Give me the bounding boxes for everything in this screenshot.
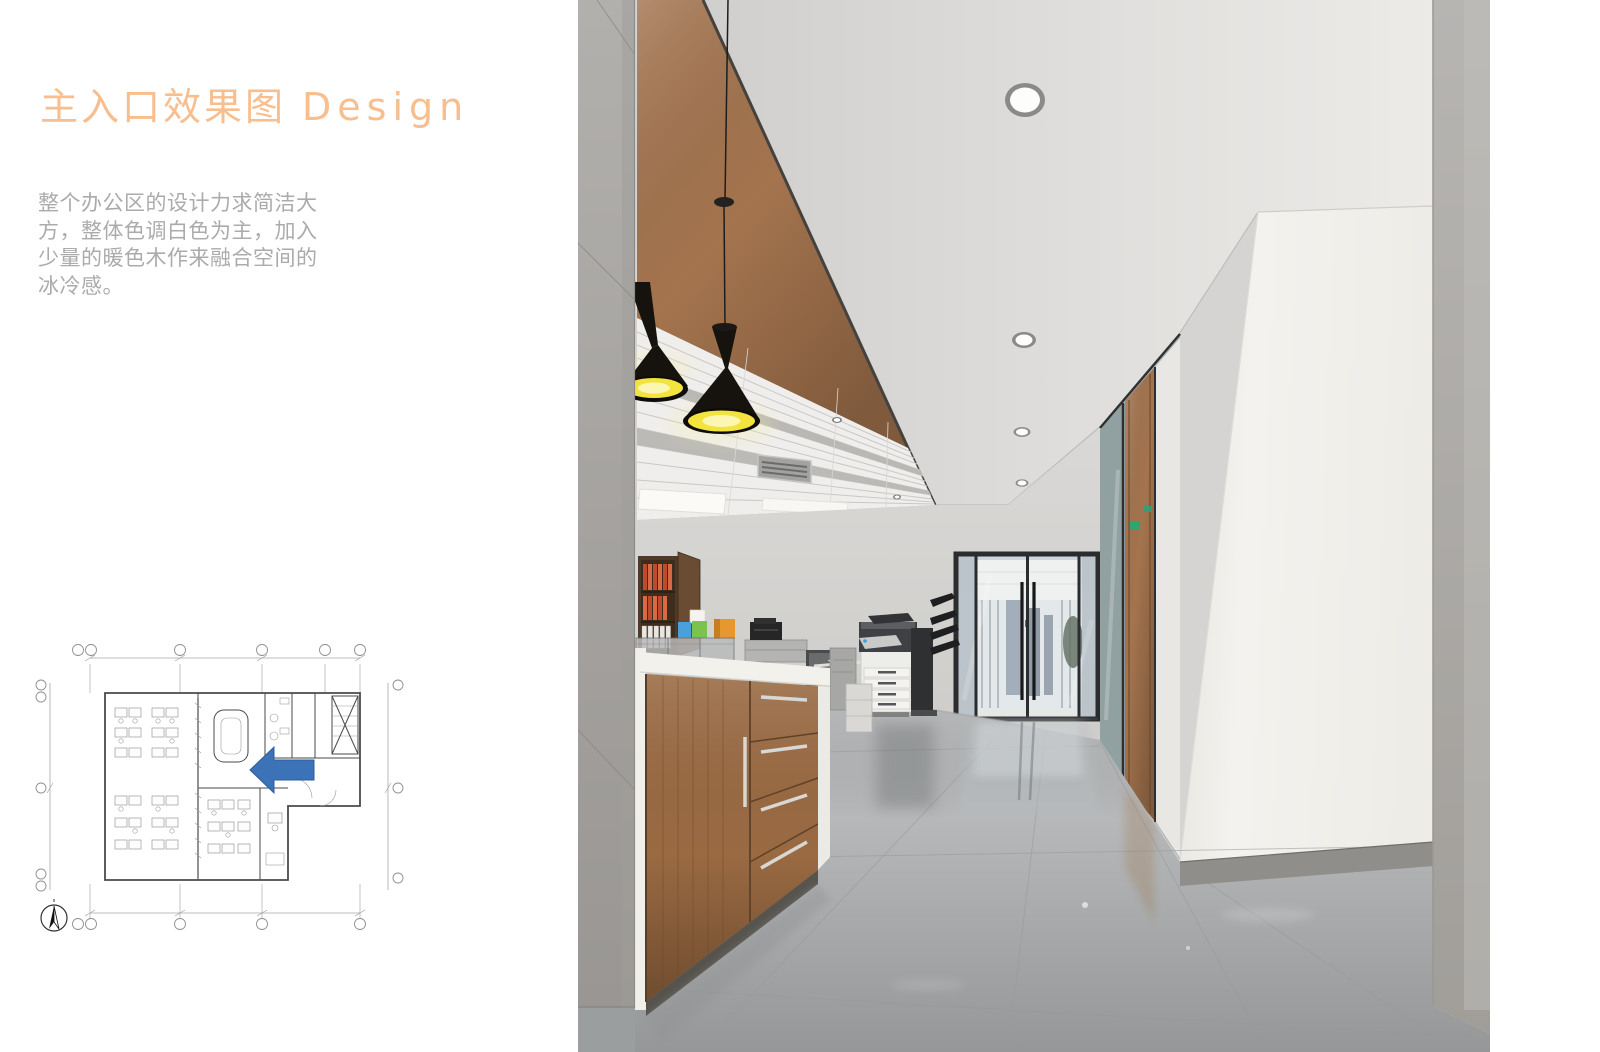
- plan-dimension-lines: [36, 645, 403, 930]
- exit-sign: [1130, 522, 1140, 529]
- drawer-pedestal: [846, 684, 872, 732]
- page-title-zh: 主入口效果图: [40, 85, 286, 129]
- north-arrow-icon: [41, 899, 67, 931]
- description-line: 冰冷感。: [38, 273, 318, 301]
- exit-sign: [1144, 506, 1152, 512]
- description-line: 方，整体色调白色为主，加入: [38, 218, 318, 246]
- entrance-arrow-icon: [250, 747, 314, 793]
- downlight-icon: [1014, 427, 1031, 437]
- rendering-photo: [578, 0, 1490, 1052]
- page-title: 主入口效果图Design: [40, 76, 469, 131]
- floor-plan-thumbnail: [30, 628, 420, 958]
- left-wall-edge: [578, 0, 635, 1052]
- description-paragraph: 整个办公区的设计力求简洁大 方，整体色调白色为主，加入 少量的暖色木作来融合空间…: [38, 190, 318, 300]
- page-title-en: Design: [302, 85, 469, 129]
- presentation-slide: 主入口效果图Design 整个办公区的设计力求简洁大 方，整体色调白色为主，加入…: [0, 0, 1600, 1052]
- plan-meeting-table: [214, 710, 248, 762]
- downlight-icon: [1005, 83, 1045, 117]
- storage-boxes: [678, 619, 735, 639]
- glass-entry-doors: [956, 554, 1098, 719]
- right-wall-edge: [1433, 0, 1490, 1034]
- downlight-icon: [832, 417, 842, 423]
- description-line: 整个办公区的设计力求简洁大: [38, 190, 318, 218]
- downlight-icon: [1016, 479, 1029, 487]
- description-line: 少量的暖色木作来融合空间的: [38, 245, 318, 273]
- downlight-icon: [893, 495, 901, 500]
- downlight-icon: [1012, 332, 1036, 348]
